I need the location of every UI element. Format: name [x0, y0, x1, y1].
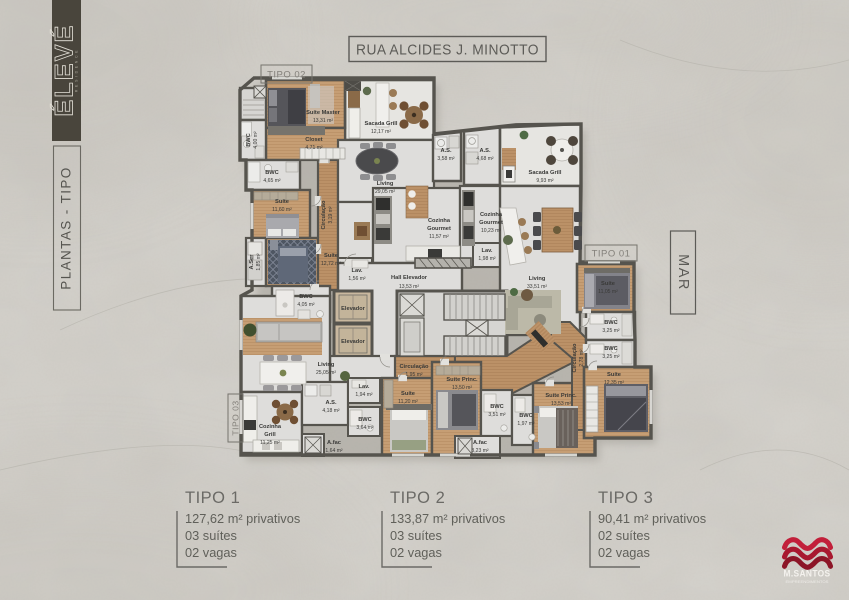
svg-text:9,93 m²: 9,93 m² — [536, 178, 554, 184]
svg-text:25,05 m²: 25,05 m² — [316, 370, 336, 376]
svg-text:RUA ALCIDES J. MINOTTO: RUA ALCIDES J. MINOTTO — [356, 43, 539, 59]
svg-text:A.fac: A.fac — [473, 440, 487, 446]
svg-text:3,19 m²: 3,19 m² — [328, 206, 334, 224]
svg-text:TIPO 2: TIPO 2 — [390, 489, 445, 507]
svg-text:RESIDENCE: RESIDENCE — [74, 48, 78, 92]
svg-text:Lav.: Lav. — [352, 268, 363, 274]
svg-text:12,35 m²: 12,35 m² — [604, 380, 624, 386]
svg-text:M.SANTOS: M.SANTOS — [784, 569, 831, 579]
svg-text:Lav.: Lav. — [482, 248, 493, 254]
svg-text:11,05 m²: 11,05 m² — [598, 289, 618, 295]
svg-text:3,23 m²: 3,23 m² — [471, 448, 489, 454]
svg-text:Gourmet: Gourmet — [479, 220, 503, 226]
svg-text:1,64 m²: 1,64 m² — [325, 448, 343, 454]
svg-text:11,60 m²: 11,60 m² — [272, 207, 292, 213]
svg-text:03 suítes: 03 suítes — [185, 528, 237, 543]
svg-text:4,71 m²: 4,71 m² — [305, 145, 323, 151]
svg-text:Suíte: Suíte — [275, 199, 289, 205]
svg-text:TIPO 02: TIPO 02 — [267, 70, 306, 81]
svg-text:10,23 m²: 10,23 m² — [481, 228, 501, 234]
svg-text:Hall Elevador: Hall Elevador — [391, 275, 428, 281]
svg-text:3,25 m²: 3,25 m² — [602, 328, 620, 334]
svg-text:Elevador: Elevador — [341, 306, 365, 312]
svg-text:Suíte Princ.: Suíte Princ. — [545, 393, 577, 399]
svg-text:4,68 m²: 4,68 m² — [476, 156, 494, 162]
svg-text:3,64 m²: 3,64 m² — [356, 425, 374, 431]
svg-text:BWC: BWC — [299, 294, 313, 300]
svg-text:Sacada Grill: Sacada Grill — [365, 121, 398, 127]
svg-text:1,95 m²: 1,95 m² — [405, 372, 423, 378]
svg-text:13,53 m²: 13,53 m² — [551, 401, 571, 407]
svg-text:Suíte Princ.: Suíte Princ. — [446, 377, 478, 383]
svg-text:A.S.: A.S. — [479, 148, 490, 154]
svg-text:BWC: BWC — [604, 320, 618, 326]
svg-text:3,25 m²: 3,25 m² — [602, 354, 620, 360]
svg-text:Suíte: Suíte — [607, 372, 621, 378]
svg-text:Living: Living — [529, 276, 546, 282]
svg-text:4,18 m²: 4,18 m² — [322, 408, 340, 414]
svg-text:BWC: BWC — [490, 404, 504, 410]
svg-text:1,85 m²: 1,85 m² — [256, 253, 262, 271]
svg-text:Circulação: Circulação — [399, 364, 429, 370]
svg-text:Sacada Grill: Sacada Grill — [529, 170, 562, 176]
svg-text:11,57 m²: 11,57 m² — [429, 234, 449, 240]
svg-text:TIPO 01: TIPO 01 — [592, 249, 631, 260]
svg-text:Lav.: Lav. — [359, 384, 370, 390]
svg-text:Circulação: Circulação — [321, 200, 327, 230]
svg-text:90,41 m² privativos: 90,41 m² privativos — [598, 511, 706, 526]
svg-text:1,94 m²: 1,94 m² — [355, 392, 373, 398]
svg-text:Suíte: Suíte — [601, 281, 615, 287]
svg-text:03 suítes: 03 suítes — [390, 528, 442, 543]
svg-text:Cozinha: Cozinha — [428, 218, 451, 224]
svg-text:11,20 m²: 11,20 m² — [398, 399, 418, 405]
svg-text:02 vagas: 02 vagas — [185, 545, 237, 560]
svg-text:1,56 m²: 1,56 m² — [348, 276, 366, 282]
svg-text:3,58 m²: 3,58 m² — [437, 156, 455, 162]
svg-text:BWC: BWC — [265, 170, 279, 176]
svg-text:11,25 m²: 11,25 m² — [260, 440, 280, 446]
svg-text:PLANTAS - TIPO: PLANTAS - TIPO — [59, 166, 74, 289]
svg-text:Suíte: Suíte — [324, 253, 338, 259]
svg-text:127,62 m² privativos: 127,62 m² privativos — [185, 511, 300, 526]
svg-text:29,05 m²: 29,05 m² — [375, 189, 395, 195]
svg-text:TIPO 1: TIPO 1 — [185, 489, 240, 507]
svg-text:Suíte Master: Suíte Master — [306, 110, 341, 116]
svg-text:Cozinha: Cozinha — [259, 424, 282, 430]
svg-text:02 suítes: 02 suítes — [598, 528, 650, 543]
svg-text:TIPO 3: TIPO 3 — [598, 489, 653, 507]
svg-text:Closet: Closet — [305, 137, 322, 143]
svg-text:4,05 m²: 4,05 m² — [297, 302, 315, 308]
svg-text:MAR: MAR — [675, 254, 691, 291]
svg-text:13,53 m²: 13,53 m² — [399, 284, 419, 290]
svg-text:A.fac: A.fac — [327, 440, 341, 446]
svg-text:Circulação: Circulação — [572, 343, 578, 373]
svg-text:Grill: Grill — [264, 432, 276, 438]
svg-text:02 vagas: 02 vagas — [390, 545, 442, 560]
svg-text:EMPREENDIMENTOS: EMPREENDIMENTOS — [786, 580, 830, 584]
svg-text:13,50 m²: 13,50 m² — [452, 385, 472, 391]
svg-text:3,51 m²: 3,51 m² — [488, 412, 506, 418]
svg-text:02 vagas: 02 vagas — [598, 545, 650, 560]
svg-text:Living: Living — [318, 362, 335, 368]
svg-text:BWC: BWC — [519, 413, 533, 419]
svg-text:Elevador: Elevador — [341, 339, 365, 345]
svg-text:A.S.: A.S. — [325, 400, 336, 406]
svg-text:Living: Living — [377, 181, 394, 187]
svg-text:Gourmet: Gourmet — [427, 226, 451, 232]
svg-text:133,87 m² privativos: 133,87 m² privativos — [390, 511, 505, 526]
svg-text:TIPO 03: TIPO 03 — [231, 400, 241, 435]
svg-text:BWC: BWC — [604, 346, 618, 352]
svg-text:2,78 m²: 2,78 m² — [579, 349, 585, 367]
svg-text:12,72 m²: 12,72 m² — [321, 261, 341, 267]
svg-text:BWC: BWC — [358, 417, 372, 423]
svg-text:Cozinha: Cozinha — [480, 212, 503, 218]
svg-text:1,98 m²: 1,98 m² — [478, 256, 496, 262]
svg-text:33,51 m²: 33,51 m² — [527, 284, 547, 290]
svg-text:4,65 m²: 4,65 m² — [263, 178, 281, 184]
svg-text:Suíte: Suíte — [401, 391, 415, 397]
svg-text:1,97 m²: 1,97 m² — [517, 421, 535, 427]
svg-text:13,31 m²: 13,31 m² — [313, 118, 333, 124]
svg-text:A.Ser: A.Ser — [249, 254, 255, 270]
svg-text:A.S.: A.S. — [440, 148, 451, 154]
svg-text:12,17 m²: 12,17 m² — [371, 129, 391, 135]
svg-text:BWC: BWC — [246, 133, 252, 147]
svg-text:4,00 m²: 4,00 m² — [253, 131, 259, 149]
